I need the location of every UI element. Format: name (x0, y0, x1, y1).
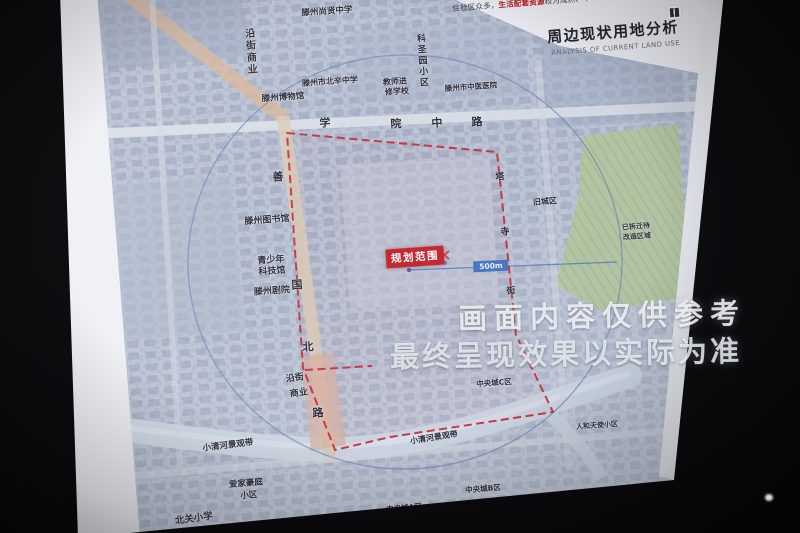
label-redevelopment-line1: 已拆迁待 (622, 223, 650, 232)
label-beixin-middle-school: 滕州市北辛中学 (302, 76, 358, 88)
label-xueyuan-road-char-2: 院 (390, 118, 402, 130)
label-xiaoqinghe-mid: 小清河景观带 (410, 430, 459, 445)
label-aijia-community-line1: 爱家豪庭 (229, 478, 264, 489)
label-shanguo-road-char-2: 国 (291, 279, 303, 291)
label-library: 滕州图书馆 (244, 215, 290, 227)
label-east-road-char-3: 街 (506, 287, 516, 297)
planning-scope-badge: 规划范围 (385, 246, 444, 269)
label-teachers-college-line1: 教师进 (383, 77, 407, 87)
label-east-road-char-2: 寺 (500, 228, 510, 238)
label-youth-science-line1: 青少年 (257, 256, 285, 267)
brand-logo (668, 6, 682, 20)
label-xiaoqinghe-west: 小清河景观带 (202, 439, 254, 454)
label-theater: 滕州剧院 (254, 286, 291, 297)
label-street-commerce-north: 沿街商业 (242, 28, 255, 77)
label-shangxian-middle-school: 滕州尚贤中学 (301, 6, 352, 18)
label-renhe-community: 人和天使小区 (576, 421, 618, 431)
label-keshengyuan-community: 科圣园小区 (415, 33, 428, 88)
label-central-city-c: 中央城C区 (476, 378, 512, 388)
photo-of-projection: 住社区众多，生活配套资源较为成熟、丰 周边现状用地分析 ANALYSIS OF … (0, 0, 800, 533)
label-street-commerce-south-line2: 商业 (289, 388, 308, 399)
label-xueyuan-road-char-1: 学 (319, 117, 331, 129)
label-central-city-a: 中央城A区 (386, 503, 422, 514)
label-east-road-char-1: 塔 (495, 173, 505, 183)
label-old-town: 旧城区 (533, 197, 557, 207)
label-tcm-hospital: 滕州市中医医院 (445, 81, 498, 92)
label-youth-science-line2: 科技馆 (258, 267, 286, 278)
label-central-city-b: 中央城B区 (465, 484, 501, 495)
logo-glyph (670, 8, 680, 18)
label-xueyuan-road-char-3: 中 (431, 117, 443, 129)
label-redevelopment-line2: 改造区域 (623, 233, 651, 242)
label-shanguo-road-char-4: 路 (312, 407, 324, 419)
radius-500m-badge: 500m (473, 260, 509, 273)
label-shanguo-road-char-3: 北 (302, 341, 314, 353)
label-shanguo-road-char-1: 善 (272, 171, 284, 183)
projector-screen: 住社区众多，生活配套资源较为成熟、丰 周边现状用地分析 ANALYSIS OF … (0, 0, 800, 533)
label-teachers-college-line2: 修学校 (385, 87, 409, 97)
label-xueyuan-road-char-4: 路 (471, 116, 483, 128)
label-museum: 滕州博物馆 (261, 92, 304, 103)
light-reflection-dot (765, 494, 773, 501)
label-aijia-community-line2: 小区 (240, 491, 258, 501)
label-street-commerce-south-line1: 沿街 (285, 373, 304, 384)
label-beiguan-primary: 北关小学 (175, 512, 214, 527)
